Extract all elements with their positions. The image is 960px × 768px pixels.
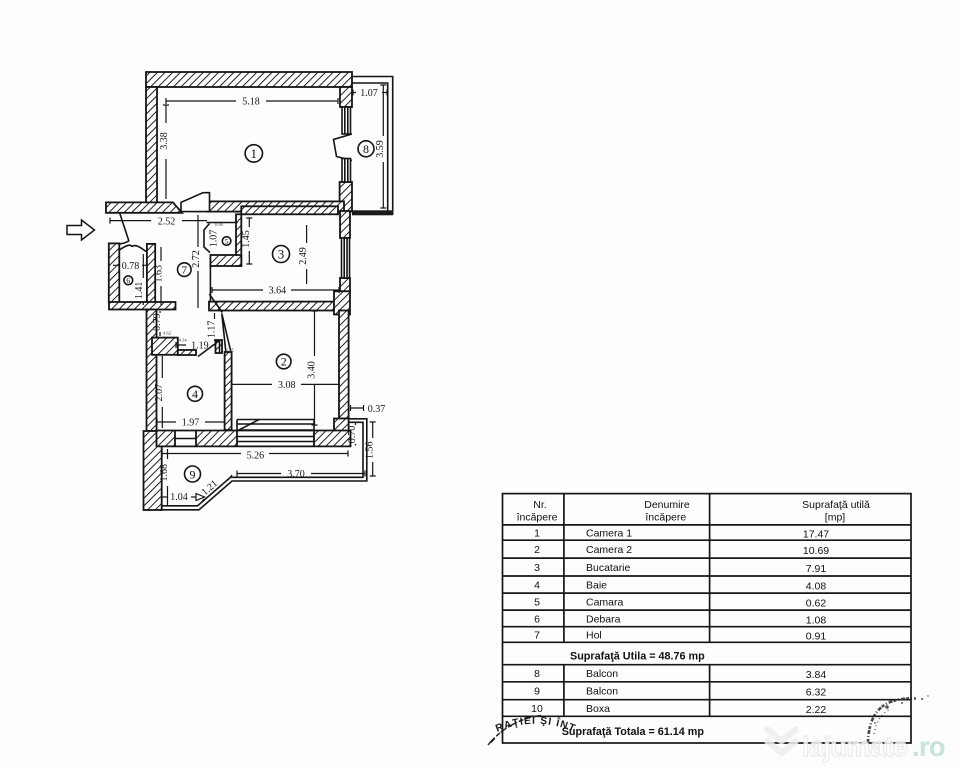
svg-text:4: 4: [534, 580, 540, 592]
svg-text:.ro: .ro: [912, 731, 945, 762]
svg-text:2: 2: [534, 544, 540, 556]
svg-text:6: 6: [126, 276, 130, 285]
svg-text:3: 3: [278, 247, 285, 262]
svg-text:încăpere: încăpere: [516, 512, 558, 524]
svg-text:2.72: 2.72: [191, 250, 202, 268]
svg-text:10: 10: [531, 703, 543, 715]
svg-text:1.04: 1.04: [170, 492, 188, 503]
svg-text:10.69: 10.69: [803, 545, 829, 557]
svg-text:4.62: 4.62: [163, 331, 171, 336]
svg-text:0.79: 0.79: [152, 313, 163, 331]
svg-text:1.97: 1.97: [182, 418, 200, 429]
svg-text:3.64: 3.64: [269, 286, 287, 297]
svg-text:0.91: 0.91: [806, 631, 827, 643]
svg-text:3.38: 3.38: [159, 132, 170, 150]
svg-text:3.08: 3.08: [278, 380, 296, 391]
svg-text:1.45: 1.45: [241, 230, 252, 248]
svg-text:6.32: 6.32: [806, 687, 827, 699]
svg-text:încăpere: încăpere: [644, 512, 686, 524]
svg-text:Baie: Baie: [586, 580, 607, 592]
svg-text:9: 9: [534, 686, 540, 698]
svg-text:Balcon: Balcon: [586, 668, 618, 680]
svg-text:1.17: 1.17: [207, 321, 218, 339]
svg-text:Camera 2: Camera 2: [586, 544, 632, 556]
svg-text:Nr.: Nr.: [533, 499, 546, 511]
svg-text:0.62: 0.62: [806, 598, 827, 610]
svg-text:5.18: 5.18: [242, 97, 260, 108]
svg-text:0.70: 0.70: [347, 426, 358, 444]
svg-text:0.25: 0.25: [226, 348, 235, 353]
svg-text:1.68: 1.68: [159, 464, 170, 482]
svg-text:7: 7: [534, 630, 540, 642]
svg-text:0.34: 0.34: [179, 338, 188, 343]
svg-text:1.56: 1.56: [365, 441, 376, 459]
svg-text:2.49: 2.49: [298, 247, 309, 265]
svg-text:8: 8: [534, 668, 540, 680]
svg-text:1.63: 1.63: [154, 265, 165, 283]
svg-text:Boxa: Boxa: [586, 703, 610, 715]
svg-text:Suprafaţă utilă: Suprafaţă utilă: [802, 499, 870, 511]
svg-text:1: 1: [534, 528, 540, 540]
svg-text:17.47: 17.47: [803, 529, 829, 541]
svg-text:3.70: 3.70: [287, 469, 305, 480]
svg-text:0.90: 0.90: [215, 222, 224, 227]
svg-text:2.22: 2.22: [806, 704, 827, 716]
svg-text:3: 3: [534, 562, 540, 574]
svg-text:5.26: 5.26: [247, 451, 265, 462]
svg-text:5: 5: [225, 237, 229, 246]
svg-text:3.84: 3.84: [806, 669, 827, 681]
svg-text:1.19: 1.19: [191, 340, 209, 351]
svg-text:Hol: Hol: [586, 630, 602, 642]
svg-text:[mp]: [mp]: [825, 512, 846, 524]
svg-text:2.52: 2.52: [158, 217, 176, 228]
svg-text:Bucatarie: Bucatarie: [586, 562, 631, 574]
svg-text:Denumire: Denumire: [644, 499, 690, 511]
svg-text:2: 2: [281, 355, 287, 369]
svg-text:6: 6: [534, 613, 540, 625]
svg-text:4.08: 4.08: [806, 581, 827, 593]
svg-text:Suprafaţă Totala = 61.14 mp: Suprafaţă Totala = 61.14 mp: [562, 726, 705, 738]
svg-text:5: 5: [534, 597, 540, 609]
svg-text:1.07: 1.07: [209, 230, 220, 248]
svg-text:7: 7: [182, 265, 188, 277]
svg-text:0.78: 0.78: [122, 261, 140, 272]
svg-text:8: 8: [363, 142, 369, 156]
svg-text:1.08: 1.08: [806, 614, 827, 626]
svg-text:1.07: 1.07: [360, 88, 378, 99]
svg-text:Camara: Camara: [586, 597, 624, 609]
svg-text:Camera 1: Camera 1: [586, 528, 632, 540]
svg-text:Debara: Debara: [586, 613, 621, 625]
svg-text:lajumate: lajumate: [802, 731, 908, 762]
svg-text:7.91: 7.91: [806, 563, 827, 575]
svg-text:9: 9: [190, 467, 196, 481]
svg-text:2.07: 2.07: [154, 384, 165, 402]
svg-text:Balcon: Balcon: [586, 686, 618, 698]
svg-text:0.37: 0.37: [368, 404, 386, 415]
svg-text:1.41: 1.41: [134, 282, 145, 300]
svg-text:1: 1: [251, 146, 258, 161]
svg-text:3.59: 3.59: [375, 140, 386, 158]
svg-text:4: 4: [192, 387, 198, 401]
svg-text:3.40: 3.40: [307, 361, 318, 379]
svg-text:Suprafaţă Utila = 48.76 mp: Suprafaţă Utila = 48.76 mp: [570, 651, 705, 663]
